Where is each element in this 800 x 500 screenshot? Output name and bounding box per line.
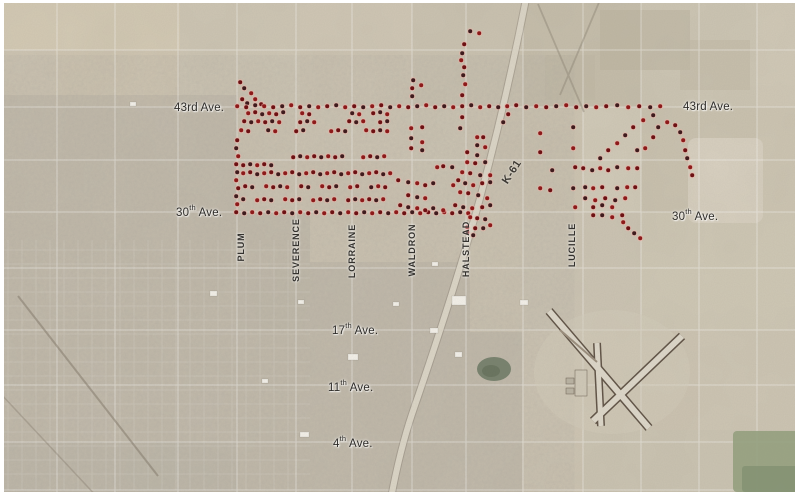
- label-street-waldron: WALDRON: [407, 224, 417, 277]
- label-17th-ave: 17th Ave.: [332, 321, 378, 337]
- label-street-halstead: HALSTEAD: [461, 221, 471, 277]
- frame-edge-left: [0, 0, 4, 500]
- frame-edge-top: [0, 0, 800, 3]
- label-4th-ave: 4th Ave.: [333, 434, 373, 450]
- label-43rd-ave-left: 43rd Ave.: [174, 98, 224, 114]
- label-30th-ave-right: 30th Ave.: [672, 207, 718, 223]
- frame-edge-right: [795, 0, 800, 500]
- label-street-lorraine: LORRAINE: [347, 224, 357, 278]
- map-figure: 43rd Ave. 30th Ave. 43rd Ave. 30th Ave. …: [0, 0, 800, 500]
- label-k61-highway: K-61: [500, 158, 524, 187]
- label-30th-ave-left: 30th Ave.: [176, 203, 222, 219]
- label-street-lucille: LUCILLE: [567, 223, 577, 267]
- satellite-map: 43rd Ave. 30th Ave. 43rd Ave. 30th Ave. …: [0, 0, 800, 500]
- label-43rd-ave-right: 43rd Ave.: [683, 97, 733, 113]
- labels-layer: 43rd Ave. 30th Ave. 43rd Ave. 30th Ave. …: [0, 0, 800, 500]
- label-street-plum: PLUM: [236, 232, 246, 261]
- frame-edge-bottom: [0, 492, 800, 500]
- label-11th-ave: 11th Ave.: [328, 378, 373, 394]
- label-street-severence: SEVERENCE: [291, 218, 301, 282]
